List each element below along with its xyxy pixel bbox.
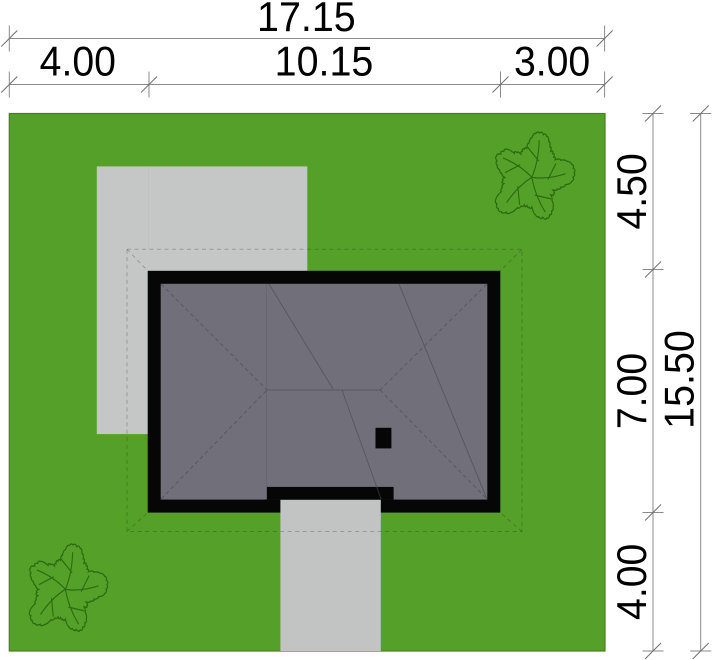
svg-text:4.50: 4.50 xyxy=(608,153,655,229)
svg-text:7.00: 7.00 xyxy=(608,353,655,429)
svg-text:15.50: 15.50 xyxy=(656,330,703,429)
svg-text:4.00: 4.00 xyxy=(608,544,655,620)
svg-text:17.15: 17.15 xyxy=(257,0,356,40)
svg-text:3.00: 3.00 xyxy=(514,38,590,85)
svg-text:10.15: 10.15 xyxy=(275,38,374,85)
svg-text:4.00: 4.00 xyxy=(40,38,116,85)
